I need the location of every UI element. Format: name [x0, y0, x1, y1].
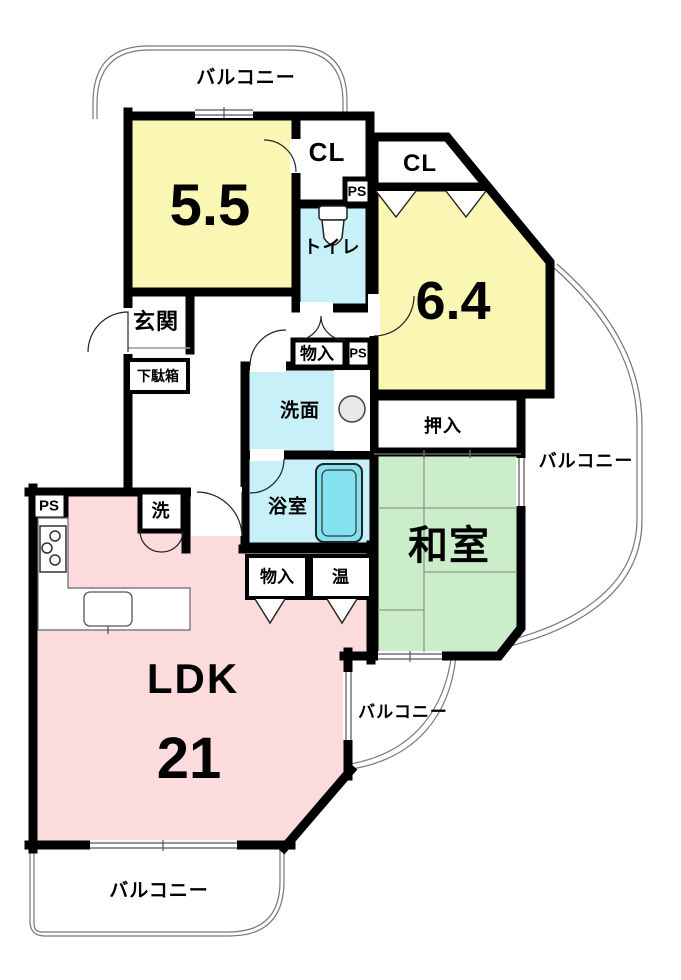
- sink-icon: [84, 592, 132, 626]
- label-ps-hall: PS: [349, 347, 366, 360]
- label-balcony-right: バルコニー: [539, 452, 634, 470]
- label-ldk: LDK: [147, 658, 239, 700]
- label-laundry: 洗: [152, 502, 171, 520]
- label-balcony-bottom: バルコニー: [109, 882, 209, 901]
- gap-6_4: [368, 294, 380, 336]
- floor-plan: バルコニー 5.5 CL PS トイレ CL 6.4 玄関 下駄箱 物入 PS …: [0, 0, 681, 980]
- label-oshiire: 押入: [424, 417, 462, 435]
- label-genkan: 玄関: [133, 311, 179, 333]
- label-toilet: トイレ: [304, 238, 361, 256]
- label-washitsu: 和室: [408, 526, 490, 566]
- label-room-6_4: 6.4: [415, 274, 490, 328]
- label-cl2: CL: [403, 152, 437, 176]
- label-cl1: CL: [309, 139, 346, 165]
- label-yokushitsu: 浴室: [268, 498, 308, 517]
- label-ps-top: PS: [348, 184, 367, 198]
- label-balcony-mid: バルコニー: [358, 704, 448, 721]
- gap-yokushitsu: [250, 449, 284, 461]
- label-senmen: 洗面: [280, 402, 320, 421]
- label-monoire-ldk: 物入: [260, 569, 294, 586]
- label-getabako: 下駄箱: [137, 369, 179, 383]
- label-balcony-top: バルコニー: [196, 69, 296, 88]
- label-room-5_5: 5.5: [170, 177, 251, 235]
- label-ldk-size: 21: [157, 730, 222, 788]
- label-water-heater: 温: [332, 569, 350, 586]
- monoire-hall-doors-arc: [297, 316, 345, 340]
- label-monoire-hall: 物入: [300, 346, 334, 363]
- rooms: [33, 116, 550, 845]
- gap-senmen: [250, 360, 286, 372]
- label-ps-kitchen: PS: [39, 499, 59, 514]
- gap-toilet: [300, 302, 333, 314]
- washing-machine-icon: [339, 396, 365, 422]
- bathtub-icon: [316, 464, 362, 542]
